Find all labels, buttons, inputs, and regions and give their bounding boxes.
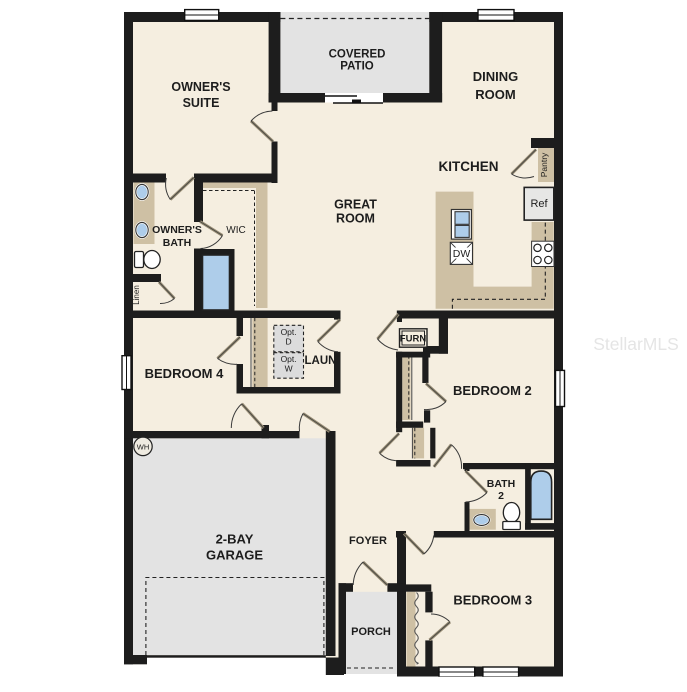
svg-text:Linen: Linen [132,285,141,305]
svg-text:OWNER'S: OWNER'S [171,80,230,94]
svg-text:2-BAY: 2-BAY [216,532,254,547]
svg-text:BATH: BATH [163,237,191,249]
svg-text:BEDROOM 2: BEDROOM 2 [453,383,532,398]
svg-text:SUITE: SUITE [183,96,220,110]
svg-text:W: W [285,364,293,374]
svg-text:Ref: Ref [530,198,548,210]
svg-text:KITCHEN: KITCHEN [439,159,499,174]
svg-text:PORCH: PORCH [351,626,391,638]
svg-text:Opt.: Opt. [281,354,297,364]
svg-text:Pantry: Pantry [539,152,549,177]
svg-text:2: 2 [498,490,504,502]
svg-text:BATH: BATH [487,478,515,490]
svg-text:ROOM: ROOM [336,212,375,226]
svg-text:COVERED: COVERED [329,49,386,61]
svg-text:DINING: DINING [473,69,519,84]
svg-text:Opt.: Opt. [281,327,297,337]
svg-text:DW: DW [453,248,471,260]
svg-text:StellarMLS: StellarMLS [593,334,679,354]
svg-text:ROOM: ROOM [475,87,515,102]
svg-text:FOYER: FOYER [349,535,387,547]
svg-text:BEDROOM 3: BEDROOM 3 [453,593,532,608]
svg-text:OWNER'S: OWNER'S [152,224,202,236]
svg-text:GREAT: GREAT [334,198,377,212]
svg-text:WIC: WIC [226,225,245,236]
svg-text:PATIO: PATIO [340,61,373,73]
svg-text:LAUN: LAUN [305,355,337,367]
svg-text:D: D [286,337,292,347]
svg-text:BEDROOM 4: BEDROOM 4 [145,366,225,381]
svg-text:FURN: FURN [400,334,427,345]
svg-text:GARAGE: GARAGE [206,548,263,563]
svg-text:WH: WH [137,443,150,452]
